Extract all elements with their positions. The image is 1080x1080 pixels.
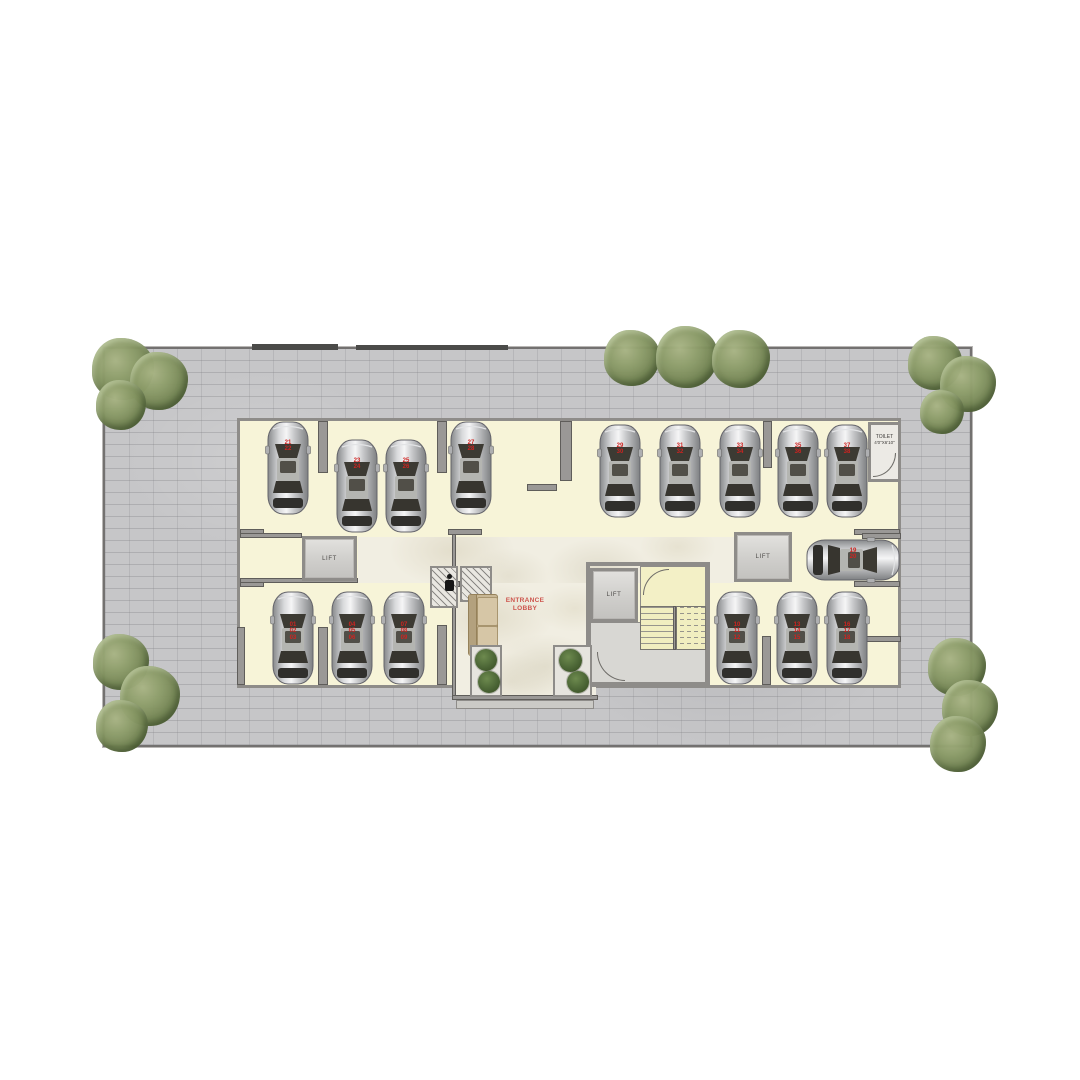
tree-icon [920, 390, 964, 434]
entrance-step [456, 700, 594, 709]
parking-car: 13 14 15 [774, 590, 820, 686]
planter-box [553, 645, 592, 697]
parking-spot-numbers: 33 34 [717, 443, 763, 456]
parking-car: 35 36 [775, 423, 821, 519]
lift-left-room: LIFT [302, 536, 357, 581]
parking-car: 29 30 [597, 423, 643, 519]
parking-spot-numbers: 31 32 [657, 443, 703, 456]
tree-icon [96, 700, 148, 752]
boundary-wall-segment [252, 344, 338, 350]
parking-car: 19 20 [806, 541, 900, 579]
plant-icon [567, 671, 589, 693]
lift-right-room: LIFT [734, 532, 792, 582]
sofa-cushion [477, 597, 498, 626]
wall [240, 533, 302, 538]
wall [237, 627, 245, 685]
parking-spot-numbers: 23 24 [334, 458, 380, 471]
wall [762, 636, 771, 685]
tree-icon [604, 330, 660, 386]
plant-icon [475, 649, 497, 671]
wall [318, 421, 328, 473]
parking-car: 07 08 09 [381, 590, 427, 686]
wheelchair-icon [447, 574, 452, 579]
parking-spot-numbers: 27 28 [448, 440, 494, 453]
parking-spot-numbers: 13 14 15 [774, 622, 820, 641]
tree-icon [656, 326, 718, 388]
parking-spot-numbers: 07 08 09 [381, 622, 427, 641]
lift-right-label: LIFT [756, 554, 771, 560]
parking-car: 27 28 [448, 420, 494, 516]
parking-spot-numbers: 37 38 [824, 443, 870, 456]
lift-left-label: LIFT [322, 556, 337, 562]
parking-spot-numbers: 19 20 [806, 548, 900, 561]
parking-car: 04 05 06 [329, 590, 375, 686]
parking-car: 37 38 [824, 423, 870, 519]
plant-icon [559, 649, 582, 672]
column-marker [527, 484, 557, 491]
wall [452, 533, 456, 699]
tree-icon [96, 380, 146, 430]
tree-icon [712, 330, 770, 388]
parking-car: 10 11 12 [714, 590, 760, 686]
toilet-size-label: 4'0"X6'10" [871, 440, 898, 445]
parking-car: 01 02 03 [270, 590, 316, 686]
parking-spot-numbers: 35 36 [775, 443, 821, 456]
tree-icon [930, 716, 986, 772]
parking-car: 31 32 [657, 423, 703, 519]
parking-car: 25 26 [383, 438, 429, 534]
parking-spot-numbers: 01 02 03 [270, 622, 316, 641]
parking-spot-numbers: 29 30 [597, 443, 643, 456]
wheelchair-icon [445, 580, 454, 591]
parking-car: 23 24 [334, 438, 380, 534]
plant-icon [478, 671, 500, 693]
planter-box [470, 645, 502, 697]
wall [763, 421, 772, 468]
wall [437, 625, 447, 685]
parking-spot-numbers: 16 17 18 [824, 622, 870, 641]
wall [318, 627, 328, 685]
parking-spot-numbers: 25 26 [383, 458, 429, 471]
parking-car: 16 17 18 [824, 590, 870, 686]
parking-car: 33 34 [717, 423, 763, 519]
wall [560, 421, 572, 481]
floor-plan-canvas: ENTRANCE LOBBY TOILET 4'0"X6'10" LIFT LI… [0, 0, 1080, 1080]
parking-spot-numbers: 10 11 12 [714, 622, 760, 641]
boundary-wall-segment [356, 345, 508, 350]
parking-spot-numbers: 04 05 06 [329, 622, 375, 641]
parking-car: 21 22 [265, 420, 311, 516]
wall [437, 421, 447, 473]
parking-spot-numbers: 21 22 [265, 440, 311, 453]
wall [448, 529, 482, 535]
